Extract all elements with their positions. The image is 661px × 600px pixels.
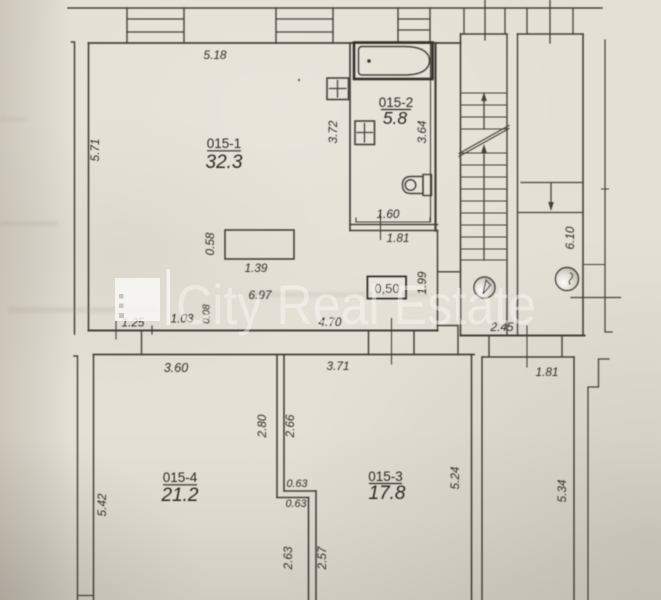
- svg-text:0.63: 0.63: [286, 478, 307, 490]
- svg-text:3.60: 3.60: [164, 361, 188, 375]
- svg-text:015-4: 015-4: [163, 470, 198, 485]
- svg-text:32.3: 32.3: [206, 152, 243, 173]
- svg-text:1.81: 1.81: [387, 231, 410, 245]
- svg-text:015-1: 015-1: [207, 136, 242, 151]
- svg-text:015-3: 015-3: [368, 469, 403, 484]
- svg-text:1.81: 1.81: [536, 365, 559, 379]
- svg-text:2.63: 2.63: [281, 546, 295, 570]
- svg-text:5.18: 5.18: [204, 48, 227, 62]
- svg-text:5.42: 5.42: [95, 493, 109, 516]
- svg-text:1.60: 1.60: [377, 207, 400, 221]
- svg-text:3.64: 3.64: [415, 120, 429, 143]
- svg-text:5.71: 5.71: [88, 139, 102, 162]
- svg-text:City Real Estate: City Real Estate: [176, 273, 536, 336]
- svg-text:5.8: 5.8: [383, 108, 408, 128]
- svg-text:17.8: 17.8: [369, 483, 406, 504]
- svg-text:0.58: 0.58: [203, 232, 217, 255]
- svg-text:5.24: 5.24: [448, 466, 462, 489]
- svg-text:6.10: 6.10: [563, 226, 577, 249]
- svg-text:2.80: 2.80: [255, 414, 269, 438]
- svg-text:3.72: 3.72: [326, 120, 340, 143]
- svg-text:21.2: 21.2: [161, 485, 199, 506]
- svg-text:0.63: 0.63: [285, 498, 306, 510]
- svg-text:2.66: 2.66: [283, 414, 297, 438]
- svg-text:5.34: 5.34: [555, 479, 569, 502]
- svg-text:2.57: 2.57: [315, 546, 329, 570]
- svg-text:3.71: 3.71: [327, 359, 350, 373]
